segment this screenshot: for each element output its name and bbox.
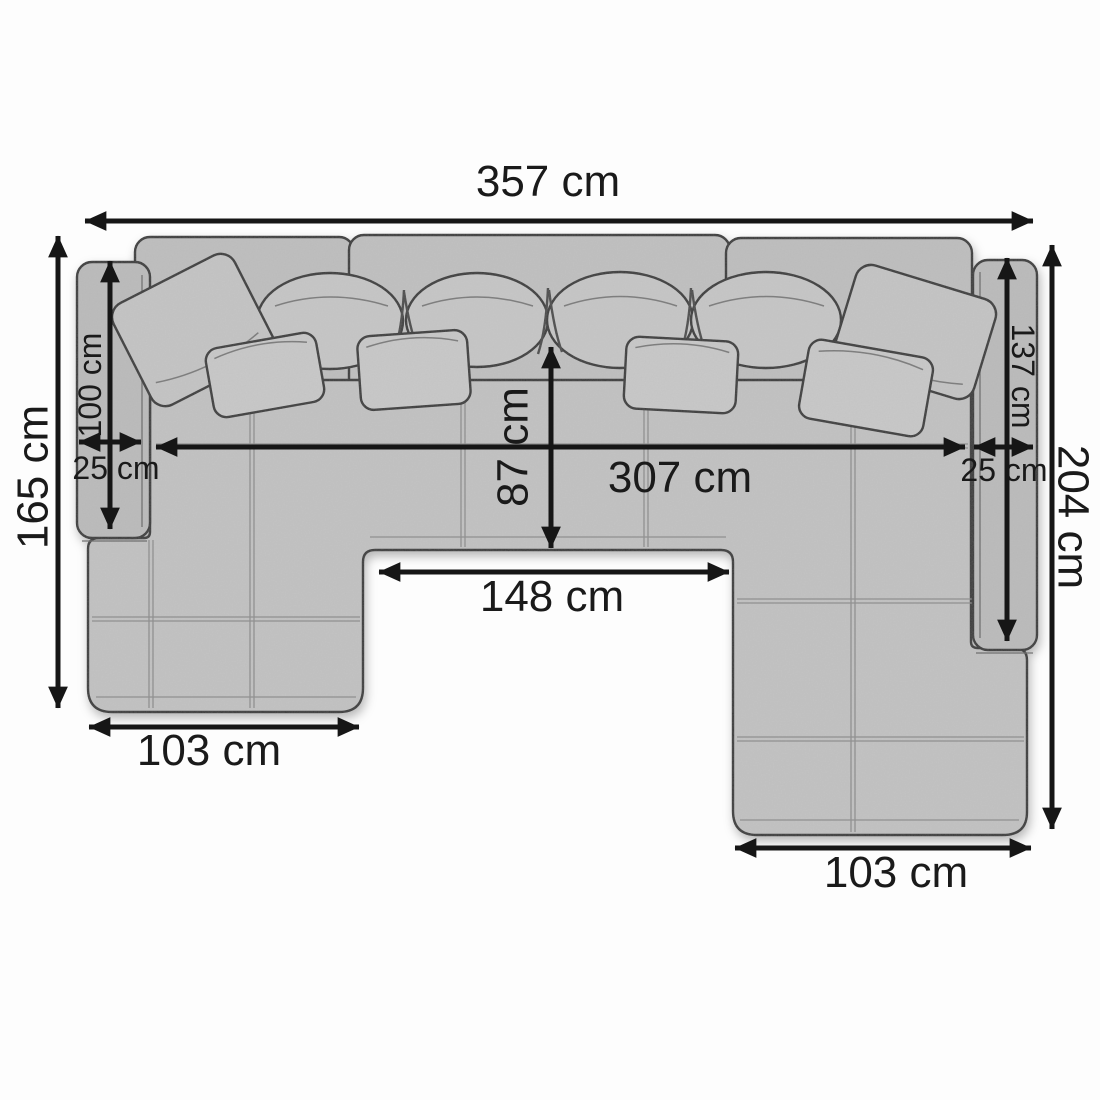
throw-pillow-2 [357, 329, 472, 410]
dim-left-chaise-width: 103 cm [89, 726, 359, 775]
dim-left-depth-label: 165 cm [9, 405, 58, 549]
dim-right-chaise-label: 103 cm [824, 848, 968, 897]
dim-right-armrest-label: 25 cm [960, 452, 1047, 488]
dim-right-chaise-width: 103 cm [735, 848, 1031, 897]
dim-right-depth: 204 cm [1049, 245, 1098, 829]
throw-pillow-2-body [357, 329, 472, 410]
diagram-canvas: 357 cm 165 cm 100 cm 25 cm 87 cm 307 cm … [0, 0, 1100, 1100]
dim-total-width-label: 357 cm [476, 157, 620, 206]
dim-left-chaise-label: 103 cm [137, 726, 281, 775]
throw-pillow-3-body [623, 336, 739, 414]
dim-left-backrest-label: 100 cm [72, 333, 108, 438]
dim-inner-width-label: 307 cm [608, 453, 752, 502]
dim-right-armrest-width: 25 cm [960, 447, 1047, 488]
dim-total-width: 357 cm [85, 157, 1033, 221]
dim-center-seat-label: 148 cm [480, 572, 624, 621]
sofa-dimension-diagram: 357 cm 165 cm 100 cm 25 cm 87 cm 307 cm … [0, 0, 1100, 1100]
throw-pillow-3 [623, 336, 739, 414]
dim-right-depth-label: 204 cm [1049, 445, 1098, 589]
dim-left-depth: 165 cm [9, 236, 59, 708]
dim-left-armrest-label: 25 cm [72, 450, 159, 486]
dim-center-seat-width: 148 cm [379, 572, 729, 621]
dim-right-backrest-label: 137 cm [1005, 324, 1041, 429]
